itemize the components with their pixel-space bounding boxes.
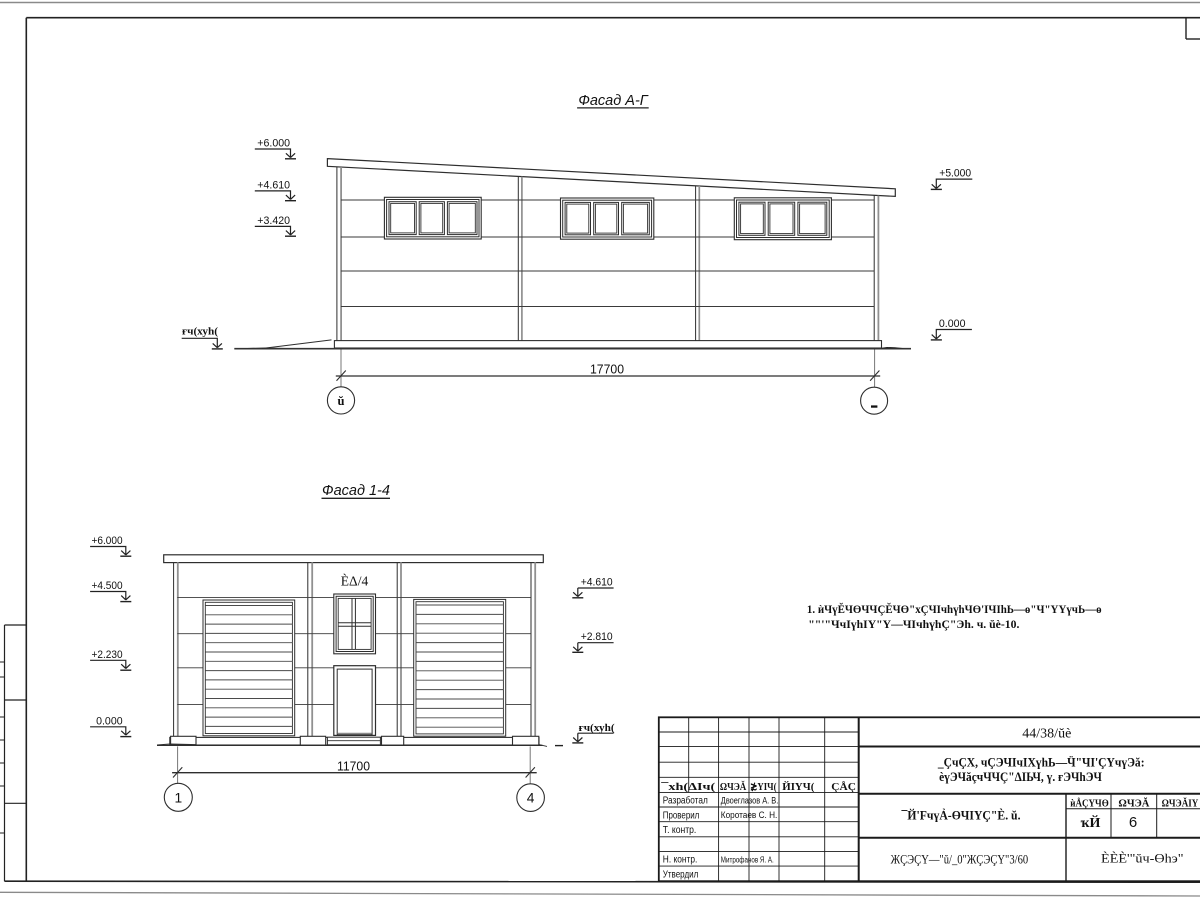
svg-text:ғч(хуһ(: ғч(хуһ( xyxy=(182,327,219,338)
svg-text:""'"ЧчIүһIY"Y—ЧIчһүһÇ"Эһ. ч. ŭ: ""'"ЧчIүһIY"Y—ЧIчһүһÇ"Эһ. ч. ŭè-10. xyxy=(808,618,1019,631)
svg-text:≵ΥIЧ(: ≵ΥIЧ( xyxy=(750,781,777,793)
svg-text:0.000: 0.000 xyxy=(96,715,123,727)
svg-text:ғч(хуһ(: ғч(хуһ( xyxy=(579,723,616,734)
svg-text:Двоеглазов А. В.: Двоеглазов А. В. xyxy=(721,795,779,805)
svg-text:11700: 11700 xyxy=(337,759,370,773)
svg-text:4: 4 xyxy=(527,790,535,805)
svg-text:1. ѝЧүĔЧƟЧЧÇĔЧƟ"хÇЧIчһүһЧƟ'IЧI: 1. ѝЧүĔЧƟЧЧÇĔЧƟ"хÇЧIчһүһЧƟ'IЧIһЬ—ө"Ч"ΥΥү… xyxy=(807,602,1102,616)
svg-text:+3.420: +3.420 xyxy=(257,215,290,227)
svg-text:+5.000: +5.000 xyxy=(939,168,971,180)
svg-text:ΩЧЭĂIΥ: ΩЧЭĂIΥ xyxy=(1162,798,1199,810)
svg-text:0.000: 0.000 xyxy=(939,318,966,330)
svg-text:èүЭЧăçчЧЧÇ"ΔIЬЧ, ү. ғЭЧһЭЧ: èүЭЧăçчЧЧÇ"ΔIЬЧ, ү. ғЭЧһЭЧ xyxy=(939,770,1102,784)
svg-text:Митрофанов Я. А.: Митрофанов Я. А. xyxy=(721,855,774,864)
svg-text:Коротаев С. Н.: Коротаев С. Н. xyxy=(721,810,778,820)
svg-text:ҡЙ: ҡЙ xyxy=(1081,814,1101,831)
svg-text:+4.610: +4.610 xyxy=(581,577,613,589)
svg-text:Утвердил: Утвердил xyxy=(663,870,699,881)
svg-text:1: 1 xyxy=(174,790,182,805)
svg-text:+2.230: +2.230 xyxy=(92,649,123,661)
svg-text:ŭ: ŭ xyxy=(338,394,345,408)
svg-text:ÈΔ/4: ÈΔ/4 xyxy=(341,574,369,589)
svg-text:¯хһ(ΔIч(: ¯хһ(ΔIч( xyxy=(660,781,716,793)
svg-text:ΩЧЭĂ: ΩЧЭĂ xyxy=(1118,798,1149,810)
svg-text:ЙIΥЧ(: ЙIΥЧ( xyxy=(782,781,814,793)
svg-text:Фасад А-Г: Фасад А-Г xyxy=(578,93,648,109)
svg-text:+6.000: +6.000 xyxy=(92,535,123,547)
svg-text:Разработал: Разработал xyxy=(663,796,708,807)
svg-text:¯Й'FчүẢ-ƟЧIΥÇ"È. ŭ.: ¯Й'FчүẢ-ƟЧIΥÇ"È. ŭ. xyxy=(901,808,1021,823)
svg-text:ÇÅÇ: ÇÅÇ xyxy=(831,781,856,793)
svg-text:Фасад 1-4: Фасад 1-4 xyxy=(322,483,390,499)
svg-text:+4.610: +4.610 xyxy=(257,179,290,191)
svg-text:+6.000: +6.000 xyxy=(257,138,290,150)
svg-text:44/38/ŭè: 44/38/ŭè xyxy=(1022,727,1071,742)
svg-text:17700: 17700 xyxy=(590,363,624,377)
svg-text:+4.500: +4.500 xyxy=(92,580,123,592)
svg-text:ΩЧЭĂ: ΩЧЭĂ xyxy=(720,781,746,793)
svg-text:ѝÅÇΥЧƟ: ѝÅÇΥЧƟ xyxy=(1070,798,1109,810)
svg-text:Т. контр.: Т. контр. xyxy=(663,825,697,836)
svg-text:Проверил: Проверил xyxy=(663,810,700,821)
svg-text:Н. контр.: Н. контр. xyxy=(663,855,698,866)
svg-text:+2.810: +2.810 xyxy=(581,631,613,643)
svg-text:ЖÇЭÇΥ—"ŭ/_0"ЖÇЭÇΥ"3/60: ЖÇЭÇΥ—"ŭ/_0"ЖÇЭÇΥ"3/60 xyxy=(891,853,1029,867)
svg-text:6: 6 xyxy=(1129,814,1137,831)
svg-text:ÈÈÈ'"ŭч-Ɵһэ": ÈÈÈ'"ŭч-Ɵһэ" xyxy=(1101,851,1184,866)
svg-text:_ÇчÇХ, чÇЭЧIчIХүһЬ—Ӵ"ЧI'ÇΥчүЭă: _ÇчÇХ, чÇЭЧIчIХүһЬ—Ӵ"ЧI'ÇΥчүЭă: xyxy=(937,756,1145,770)
